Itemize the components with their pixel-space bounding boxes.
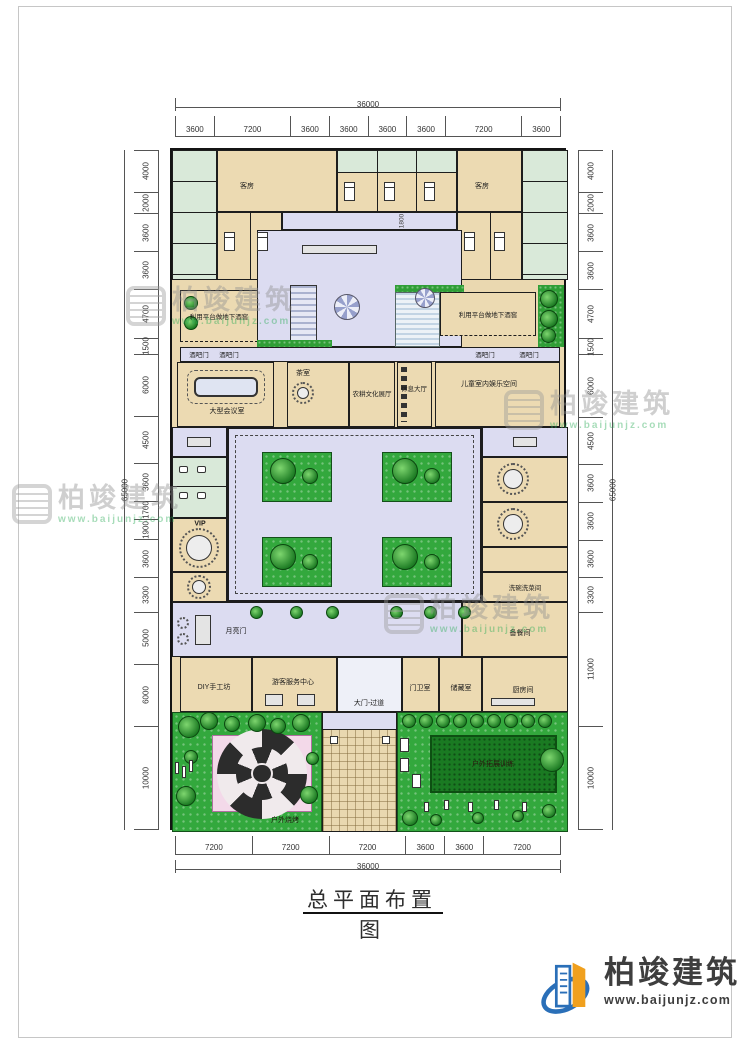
- round-table: [497, 463, 529, 495]
- tree: [302, 554, 318, 570]
- site-furniture: [444, 800, 449, 810]
- label-guest-right: 客房: [475, 181, 489, 191]
- dim-segment: 3600: [406, 836, 445, 854]
- tree: [424, 606, 437, 619]
- dim-segment: 3600: [579, 541, 603, 579]
- label-cellar-left: 利用平台做地下酒窖: [190, 311, 249, 321]
- tree: [176, 786, 196, 806]
- site-furniture: [424, 802, 429, 812]
- tree: [184, 296, 198, 310]
- label-diy: DIY手工坊: [198, 682, 231, 692]
- label-moon-gate: 月亮门: [226, 626, 247, 636]
- dim-right-total: 65000: [612, 150, 625, 830]
- dim-segment: 3600: [134, 540, 158, 578]
- table: [513, 437, 537, 447]
- dim-segment: 3600: [134, 214, 158, 252]
- dim-segment: 7200: [330, 836, 407, 854]
- site-furniture: [522, 802, 527, 812]
- bed: [424, 182, 435, 201]
- dim-left-segments: 4000200036003600470015006000450036001700…: [134, 150, 159, 830]
- tree: [402, 714, 416, 728]
- site-furniture: [382, 736, 390, 744]
- tree: [540, 748, 564, 772]
- tree: [458, 606, 471, 619]
- tree: [402, 810, 418, 826]
- tree: [306, 752, 319, 765]
- label-tea: 茶室: [296, 368, 310, 378]
- room-left-lounge: [172, 427, 227, 457]
- site-furniture: [494, 800, 499, 810]
- label-exhibit: 农耕文化展厅: [353, 388, 392, 398]
- label-inner-dim-1800: 1800: [399, 214, 406, 228]
- tree: [292, 714, 310, 732]
- drawing-title: 总平面布置图: [296, 884, 448, 944]
- dim-segment: 3300: [134, 578, 158, 613]
- room-bath-right-wing: [522, 150, 568, 280]
- label-prep: 备餐间: [510, 628, 531, 638]
- company-name: 柏竣建筑: [604, 954, 740, 993]
- dim-segment: 4700: [579, 290, 603, 339]
- company-logo: 柏竣建筑 www.baijunjz.com: [540, 954, 740, 1022]
- room-guest-right: [457, 150, 522, 212]
- dim-right-segments: 4000200036003600470015006000450036003600…: [578, 150, 603, 830]
- wall-partition: [377, 151, 379, 211]
- dim-segment: 6000: [134, 665, 158, 727]
- dim-segment: 4500: [579, 418, 603, 465]
- garden-stone: [177, 633, 189, 645]
- paved-path: [322, 712, 397, 832]
- dim-segment: 3600: [369, 116, 408, 136]
- title-underline: [303, 912, 443, 914]
- tree: [540, 310, 558, 328]
- dim-segment: 3600: [175, 116, 215, 136]
- tree: [270, 544, 296, 570]
- display-cases: [401, 367, 407, 422]
- vip-round-table: [179, 528, 219, 568]
- tree: [270, 458, 296, 484]
- tree: [326, 606, 339, 619]
- dim-segment: 7200: [446, 116, 522, 136]
- label-cellar-right: 利用平台做地下酒窖: [459, 309, 518, 319]
- screen-panel: [195, 615, 211, 645]
- dim-segment: 7200: [175, 836, 253, 854]
- dim-segment: 1500: [134, 339, 158, 355]
- site-furniture: [330, 736, 338, 744]
- dim-bottom-total: 36000: [175, 856, 561, 870]
- dim-segment: 7200: [484, 836, 561, 854]
- tree: [540, 290, 558, 308]
- dim-segment: 10000: [579, 727, 603, 830]
- label-bar-door: 酒吧门: [219, 349, 239, 359]
- label-bar-door: 酒吧门: [189, 349, 209, 359]
- table: [187, 437, 211, 447]
- room-rest-hall: [397, 362, 432, 427]
- tree: [250, 606, 263, 619]
- paving-medallion: [415, 288, 435, 308]
- floor-plan: 客房 客房 利用平台做地下酒窖 利用平台做地下酒窖 酒吧门 酒吧门 酒吧门 酒吧…: [170, 148, 566, 830]
- paving-medallion: [334, 294, 360, 320]
- dim-segment: 3600: [330, 116, 369, 136]
- bed: [257, 232, 268, 251]
- label-gate: 大门-过道: [354, 698, 384, 708]
- tree: [424, 468, 440, 484]
- tree: [430, 814, 442, 826]
- company-url: www.baijunjz.com: [604, 993, 740, 1007]
- label-visitor-center: 游客服务中心: [272, 677, 314, 687]
- bbq-target-pattern: [217, 729, 307, 819]
- conference-table: [194, 377, 258, 397]
- room-right-lounge: [482, 427, 568, 457]
- bed: [344, 182, 355, 201]
- dim-segment: 3600: [579, 252, 603, 290]
- tree: [538, 714, 552, 728]
- dim-segment: 3300: [579, 578, 603, 613]
- room-bath-strip: [338, 151, 456, 173]
- tree: [504, 714, 518, 728]
- dim-segment: 11000: [579, 613, 603, 727]
- dim-segment: 6000: [579, 355, 603, 417]
- corridor-top: [282, 212, 457, 230]
- dim-top-total: 36000: [175, 94, 561, 108]
- dim-segment: 3600: [134, 252, 158, 290]
- room-bath-left-wing: [172, 150, 217, 280]
- room-guest-left: [217, 150, 337, 212]
- dim-segment: 3600: [579, 503, 603, 541]
- tree: [472, 812, 484, 824]
- round-table: [187, 575, 211, 599]
- label-wash: 洗碗洗菜间: [509, 582, 542, 592]
- tree: [419, 714, 433, 728]
- tree: [424, 554, 440, 570]
- stairs: [290, 285, 317, 342]
- bed: [464, 232, 475, 251]
- tree: [542, 804, 556, 818]
- dim-segment: 3600: [291, 116, 330, 136]
- wall-partition: [250, 213, 252, 279]
- tree: [392, 544, 418, 570]
- dim-segment: 3600: [445, 836, 484, 854]
- site-furniture: [182, 766, 186, 778]
- dim-segment: 1900: [134, 520, 158, 540]
- tree: [392, 458, 418, 484]
- room-kids: [435, 362, 560, 427]
- tree: [302, 468, 318, 484]
- dim-segment: 1700: [134, 502, 158, 520]
- dim-segment: 5000: [134, 613, 158, 665]
- label-guest-left: 客房: [240, 181, 254, 191]
- tree: [178, 716, 200, 738]
- bench: [302, 245, 377, 254]
- round-table: [497, 508, 529, 540]
- site-furniture: [412, 774, 421, 788]
- dim-bottom-segments: 720072007200360036007200: [175, 836, 561, 855]
- label-bbq: 户外烧烤: [271, 815, 299, 825]
- desk: [265, 694, 283, 706]
- desk: [297, 694, 315, 706]
- room-guest-middle-wing: [337, 150, 457, 212]
- site-furniture: [400, 758, 409, 772]
- tree: [541, 328, 556, 343]
- site-furniture: [189, 760, 193, 772]
- dim-segment: 4000: [134, 150, 158, 193]
- bed: [494, 232, 505, 251]
- label-bar-door: 酒吧门: [519, 349, 539, 359]
- label-kitchen: 厨房间: [513, 685, 534, 695]
- dim-segment: 3600: [134, 464, 158, 502]
- tree: [200, 712, 218, 730]
- dim-segment: 4500: [134, 417, 158, 464]
- dim-segment: 3600: [407, 116, 446, 136]
- label-vip: VIP: [194, 521, 205, 528]
- planting-band: [257, 340, 332, 347]
- tree: [290, 606, 303, 619]
- tree: [248, 714, 266, 732]
- colonnade: [235, 435, 474, 594]
- tree: [487, 714, 501, 728]
- dim-segment: 6000: [134, 355, 158, 417]
- dim-segment: 2000: [134, 193, 158, 214]
- company-logo-icon: [540, 954, 598, 1022]
- dim-segment: 3600: [522, 116, 561, 136]
- garden-stone: [177, 617, 189, 629]
- dim-segment: 7200: [215, 116, 291, 136]
- dim-segment: 7200: [253, 836, 330, 854]
- dim-segment: 4000: [579, 150, 603, 193]
- tree: [470, 714, 484, 728]
- wall-partition: [490, 213, 492, 279]
- site-furniture: [468, 802, 473, 812]
- gate-canopy: [322, 712, 397, 730]
- dim-segment: 4700: [134, 290, 158, 339]
- site-furniture: [400, 738, 409, 752]
- tree: [453, 714, 467, 728]
- label-rest-hall: 休息大厅: [401, 383, 427, 393]
- label-guard: 门卫室: [410, 683, 431, 693]
- tree: [521, 714, 535, 728]
- bed: [224, 232, 235, 251]
- room-toilets: [172, 457, 227, 518]
- dim-segment: 3600: [579, 214, 603, 252]
- label-training: 户外拓展训练: [472, 759, 514, 769]
- site-furniture: [175, 762, 179, 774]
- wall-partition: [416, 151, 418, 211]
- tree: [390, 606, 403, 619]
- dim-segment: 2000: [579, 193, 603, 214]
- kitchen-counter: [491, 698, 535, 706]
- room-service: [482, 547, 568, 572]
- dim-segment: 10000: [134, 727, 158, 830]
- corridor-moon-gate: [172, 602, 462, 657]
- label-kids: 儿童室内娱乐空间: [461, 379, 517, 389]
- bbq-pad: [212, 735, 312, 812]
- tree: [224, 716, 240, 732]
- label-conference: 大型会议室: [210, 406, 245, 416]
- dim-segment: 1500: [579, 339, 603, 355]
- dim-segment: 3600: [579, 465, 603, 503]
- tree: [270, 718, 286, 734]
- bed: [384, 182, 395, 201]
- tea-table: [292, 382, 314, 404]
- tree: [436, 714, 450, 728]
- tree: [300, 786, 318, 804]
- dim-top-segments: 36007200360036003600360072003600: [175, 116, 561, 137]
- label-storage: 储藏室: [451, 683, 472, 693]
- label-bar-door: 酒吧门: [475, 349, 495, 359]
